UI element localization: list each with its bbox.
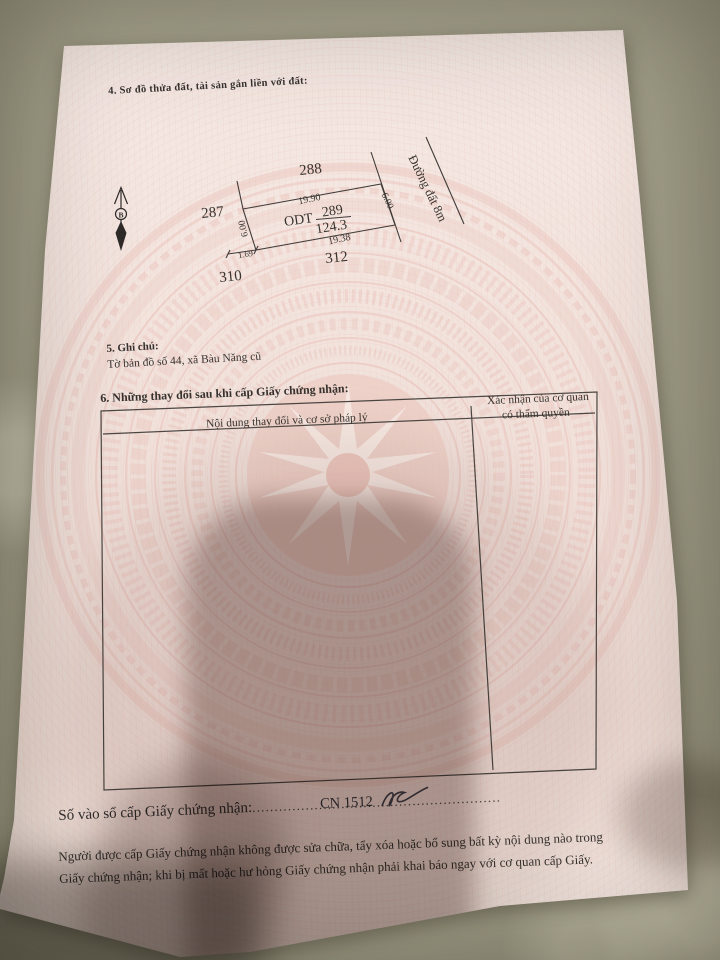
- paper-sheet: 4. Sơ đồ thửa đất, tài sản gắn liền với …: [0, 0, 720, 960]
- table-col2-header-line1: Xác nhận của cơ quan: [487, 391, 590, 407]
- registry-entry: CN 1512: [319, 783, 431, 814]
- signature-scribble: [378, 783, 431, 811]
- certificate-page: 4. Sơ đồ thửa đất, tài sản gắn liền với …: [0, 0, 720, 960]
- changes-table-lines: [101, 392, 597, 790]
- table-col2-header-line2: có thẩm quyền: [502, 406, 570, 422]
- certificate-photo: 4. Sơ đồ thửa đất, tài sản gắn liền với …: [0, 0, 720, 960]
- registry-number: CN 1512: [320, 794, 373, 812]
- table-col1-header: Nội dung thay đổi và cơ sở pháp lý: [206, 411, 368, 431]
